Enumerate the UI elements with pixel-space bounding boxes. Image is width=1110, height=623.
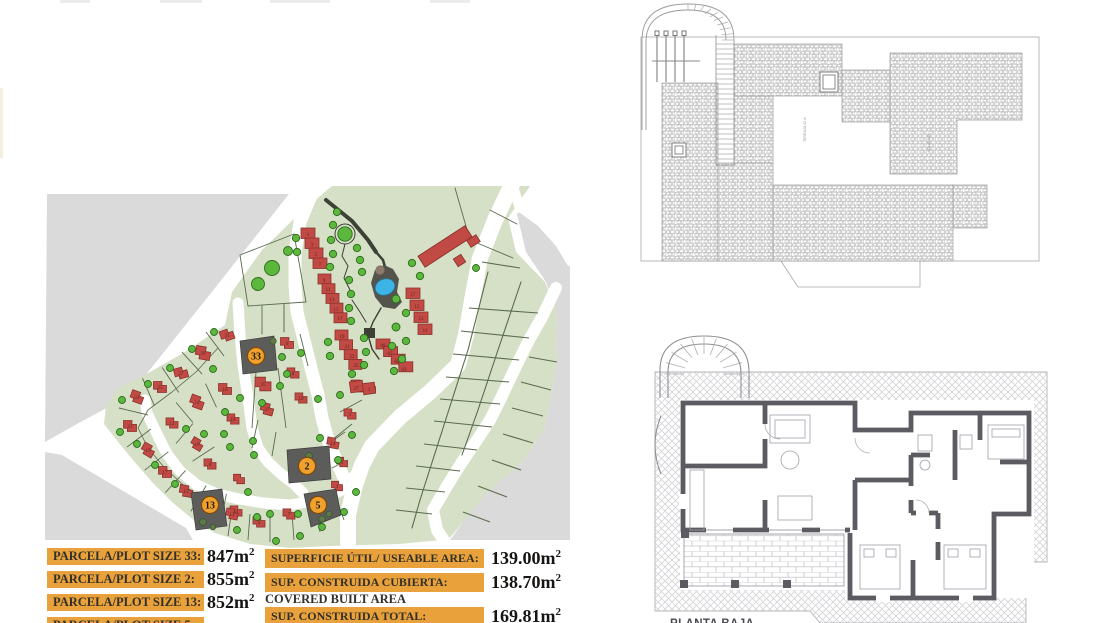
svg-text:17: 17 <box>411 293 417 298</box>
svg-text:21: 21 <box>128 425 134 430</box>
svg-text:27: 27 <box>179 372 185 377</box>
svg-text:PLANTA BAJA: PLANTA BAJA <box>670 618 754 623</box>
svg-text:35: 35 <box>261 383 267 388</box>
svg-text:15: 15 <box>184 490 190 495</box>
svg-text:11: 11 <box>423 329 428 334</box>
svg-text:10: 10 <box>299 397 305 402</box>
svg-text:15: 15 <box>334 308 340 313</box>
svg-text:37: 37 <box>265 408 271 413</box>
svg-text:17: 17 <box>163 471 169 476</box>
svg-text:5: 5 <box>316 500 321 511</box>
svg-text:09: 09 <box>381 344 387 349</box>
svg-text:2: 2 <box>305 461 310 472</box>
svg-text:03: 03 <box>402 368 408 373</box>
svg-text:12: 12 <box>170 422 176 427</box>
svg-text:19: 19 <box>146 449 152 454</box>
svg-text:13: 13 <box>330 298 336 303</box>
svg-text:19: 19 <box>340 335 346 340</box>
svg-text:27: 27 <box>354 387 360 392</box>
svg-text:21: 21 <box>345 345 351 350</box>
svg-text:10: 10 <box>195 443 201 448</box>
svg-text:SOLARIUM: SOLARIUM <box>927 134 931 152</box>
svg-text:33: 33 <box>251 351 261 362</box>
svg-text:TERRAZA 42 m: TERRAZA 42 m <box>803 117 807 142</box>
svg-text:23: 23 <box>135 396 141 401</box>
svg-text:25: 25 <box>158 386 164 391</box>
svg-text:13: 13 <box>205 500 215 511</box>
svg-text:31: 31 <box>225 334 231 339</box>
svg-text:23: 23 <box>350 355 356 360</box>
svg-text:07: 07 <box>388 352 394 357</box>
svg-text:11: 11 <box>326 288 331 293</box>
svg-text:14: 14 <box>195 401 201 406</box>
svg-text:13: 13 <box>419 317 425 322</box>
svg-text:13: 13 <box>230 513 236 518</box>
svg-text:17: 17 <box>338 317 344 322</box>
svg-text:29: 29 <box>201 352 207 357</box>
svg-text:25: 25 <box>354 364 360 369</box>
svg-text:16: 16 <box>223 388 229 393</box>
svg-text:18: 18 <box>231 418 237 423</box>
svg-text:15: 15 <box>415 305 421 310</box>
svg-text:14: 14 <box>331 442 337 447</box>
